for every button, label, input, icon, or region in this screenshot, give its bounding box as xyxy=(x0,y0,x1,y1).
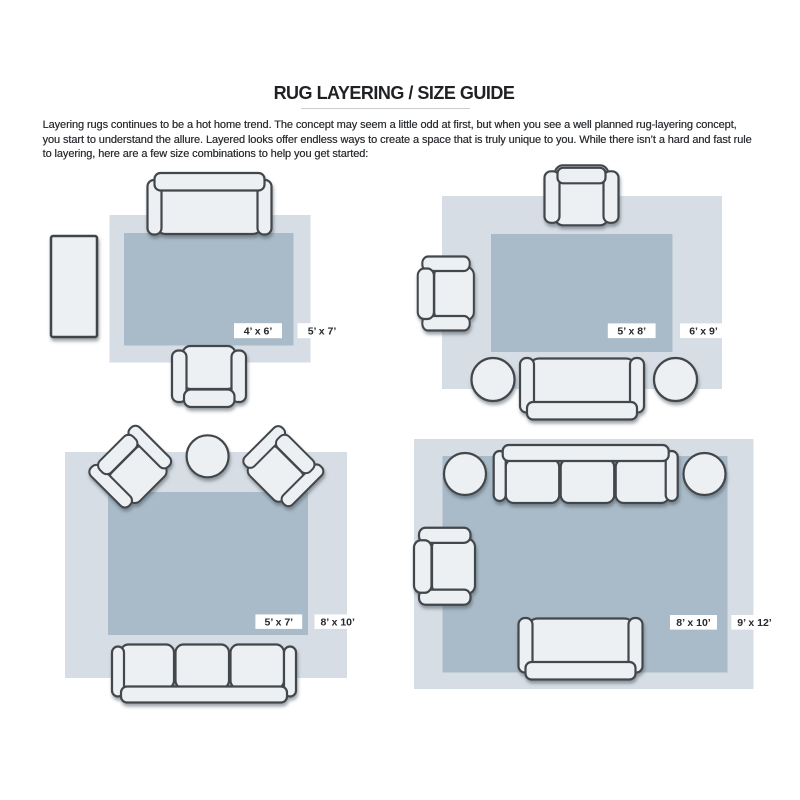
svg-text:4’ x 6’: 4’ x 6’ xyxy=(244,326,273,338)
svg-text:9’ x 12’: 9’ x 12’ xyxy=(737,617,772,629)
svg-text:5’ x 7’: 5’ x 7’ xyxy=(308,326,337,338)
svg-text:6’ x 9’: 6’ x 9’ xyxy=(689,326,718,338)
svg-text:5’ x 7’: 5’ x 7’ xyxy=(264,617,293,629)
svg-text:8’ x 10’: 8’ x 10’ xyxy=(320,617,355,629)
svg-text:5’ x 8’: 5’ x 8’ xyxy=(617,326,646,338)
svg-text:8’ x 10’: 8’ x 10’ xyxy=(676,617,711,629)
